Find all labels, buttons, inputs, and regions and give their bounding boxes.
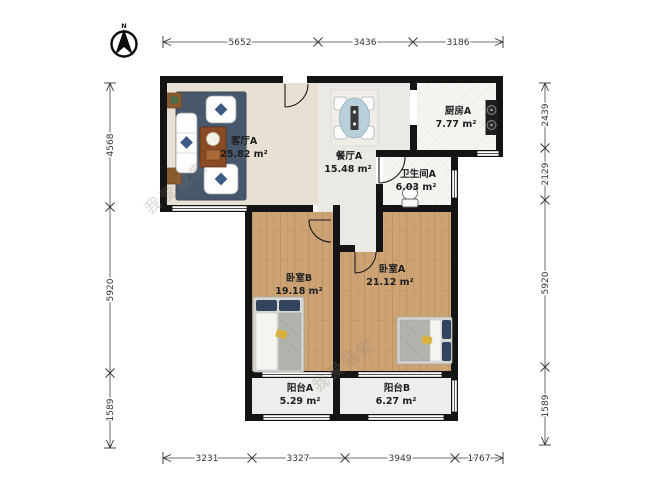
dim-bottom-1: 3231 [196,454,219,464]
bed-bedroom-b [253,297,304,372]
dim-top-1: 5652 [229,38,252,48]
dim-top-3: 3186 [447,38,470,48]
bathroom-window [452,170,457,198]
balcony-a-name: 阳台A [287,382,314,394]
balcony-b-side-window [452,380,457,412]
bathroom-name: 卫生间A [400,168,437,180]
north-compass: N [112,22,137,57]
dim-bottom-4: 1767 [468,454,491,464]
balcony-b-name: 阳台B [384,382,410,394]
bedroom-b-name: 卧室B [286,272,312,284]
dim-bottom-2: 3327 [287,454,310,464]
dim-right-4: 1589 [541,394,551,417]
dining-set [331,90,378,146]
dim-top-2: 3436 [354,38,377,48]
dim-bottom-3: 3949 [389,454,412,464]
dimension-top: 5652 3436 3186 [163,36,503,48]
dim-right-2: 2129 [541,162,551,185]
living-room-area: 25.82 m² [220,149,267,160]
dim-left-3: 1589 [106,398,116,421]
stove [486,100,498,135]
balcony-a-window [263,415,330,420]
compass-n-label: N [121,22,126,30]
dim-left-2: 5920 [106,278,116,301]
dining-room-name: 餐厅A [335,150,363,162]
bathroom-area: 6.03 m² [396,182,437,193]
dining-room-area: 15.48 m² [324,164,371,175]
armchair-top [206,96,236,123]
balcony-b-window [368,415,444,420]
dim-right-1: 2439 [541,103,551,126]
floorplan-canvas: 我爱我家 我爱我家 客厅A 25.82 m² 餐厅A 15.48 m² 厨房A … [0,0,667,500]
living-room-name: 客厅A [230,135,258,147]
dim-left-1: 4568 [106,133,116,156]
bedroom-b-area: 19.18 m² [275,286,322,297]
bedroom-a-name: 卧室A [379,263,406,275]
kitchen-name: 厨房A [445,105,472,117]
dim-right-3: 5920 [541,271,551,294]
kitchen-area: 7.77 m² [436,119,477,130]
balcony-b-area: 6.27 m² [376,396,417,407]
dimension-bottom: 3231 3327 3949 1767 [163,452,503,464]
dimension-right: 2439 2129 5920 1589 [539,83,551,445]
bed-bedroom-a [397,317,452,364]
bedroom-a-balcony-window [358,372,442,377]
kitchen-window [477,151,499,156]
bedroom-a-area: 21.12 m² [366,277,413,288]
balcony-a-area: 5.29 m² [280,396,321,407]
living-window [172,206,247,211]
floor-plan: 我爱我家 我爱我家 客厅A 25.82 m² 餐厅A 15.48 m² 厨房A … [0,0,667,500]
dimension-left: 4568 5920 1589 [104,83,116,448]
